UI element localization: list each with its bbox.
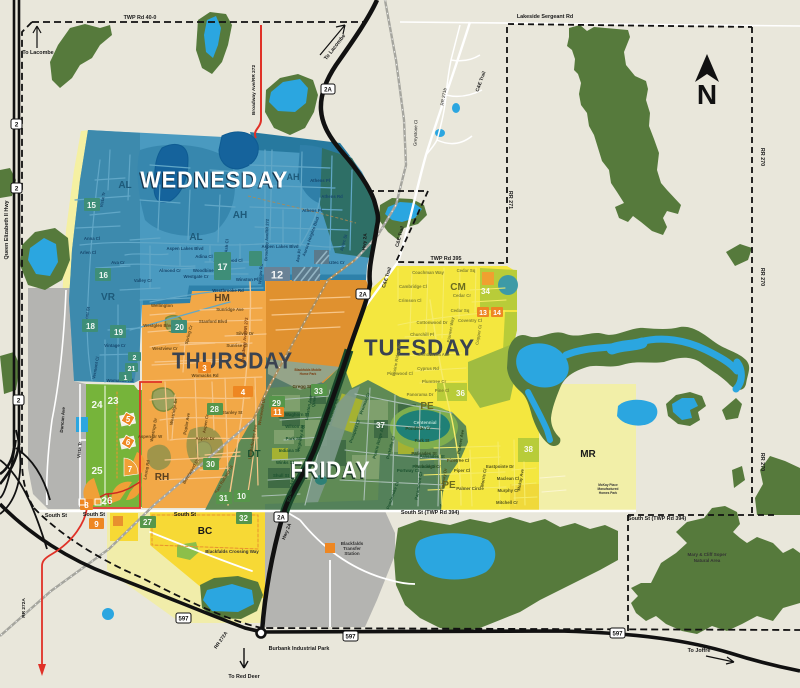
svg-text:Homes Park: Homes Park	[599, 491, 618, 495]
svg-text:BC: BC	[198, 526, 212, 537]
svg-text:RR 270: RR 270	[759, 268, 765, 286]
svg-text:Coachman Way: Coachman Way	[412, 270, 444, 275]
svg-text:597: 597	[345, 635, 356, 641]
svg-text:Vintage Cr: Vintage Cr	[104, 343, 126, 348]
svg-text:Mary & Cliff Soper: Mary & Cliff Soper	[687, 552, 726, 557]
svg-text:Adina Cl: Adina Cl	[195, 254, 212, 259]
svg-text:597: 597	[612, 632, 623, 638]
svg-text:Panorama Dr: Panorama Dr	[407, 392, 434, 397]
svg-text:29: 29	[272, 399, 281, 408]
svg-text:Broadway Ave/RR 272: Broadway Ave/RR 272	[251, 65, 257, 116]
svg-text:30: 30	[206, 460, 215, 469]
svg-text:HM: HM	[214, 293, 230, 304]
svg-text:Athens Rd: Athens Rd	[321, 194, 343, 199]
svg-text:6: 6	[126, 438, 131, 447]
svg-text:Aspen Dr: Aspen Dr	[195, 436, 214, 441]
svg-text:Westgate Cr: Westgate Cr	[184, 274, 209, 279]
svg-text:Aspen Lakes Blvd: Aspen Lakes Blvd	[166, 246, 203, 251]
svg-text:Anna Cl: Anna Cl	[84, 236, 100, 241]
svg-text:To Joffre: To Joffre	[688, 648, 711, 654]
svg-text:South St (TWP Rd 394): South St (TWP Rd 394)	[401, 510, 460, 516]
svg-text:Natural Area: Natural Area	[694, 558, 721, 563]
svg-text:Cedar Sq: Cedar Sq	[457, 268, 476, 273]
svg-text:RR 270: RR 270	[759, 453, 765, 471]
svg-text:TWP Rd 40-0: TWP Rd 40-0	[124, 15, 157, 21]
svg-text:1: 1	[124, 375, 128, 382]
svg-text:Lakeside Sergeant Rd: Lakeside Sergeant Rd	[517, 14, 573, 20]
svg-text:9: 9	[94, 520, 99, 529]
svg-text:Cedar Cr: Cedar Cr	[453, 293, 471, 298]
svg-text:Home Park: Home Park	[300, 372, 317, 376]
svg-text:MR: MR	[580, 449, 596, 460]
svg-text:Eastpointe Dr: Eastpointe Dr	[486, 464, 514, 469]
svg-text:Cambridge Cl: Cambridge Cl	[399, 284, 427, 289]
svg-text:5: 5	[126, 415, 131, 424]
svg-text:Womacks Rd: Womacks Rd	[192, 373, 219, 378]
svg-text:Pine Cl: Pine Cl	[435, 388, 450, 393]
svg-text:2: 2	[17, 398, 21, 405]
svg-text:To Red Deer: To Red Deer	[228, 674, 260, 680]
svg-text:Aztec Cr: Aztec Cr	[327, 260, 345, 265]
svg-text:Pinewood Cl: Pinewood Cl	[387, 371, 413, 376]
svg-text:25: 25	[91, 466, 103, 477]
svg-text:Pinetree Cl: Pinetree Cl	[447, 458, 469, 463]
svg-text:Palisades St: Palisades St	[419, 454, 445, 459]
svg-text:2A: 2A	[359, 293, 367, 299]
svg-text:24: 24	[91, 400, 103, 411]
svg-text:2A: 2A	[324, 88, 332, 94]
svg-text:19: 19	[114, 328, 123, 337]
svg-text:RR 271: RR 271	[507, 191, 513, 209]
svg-text:Cyprus Rd: Cyprus Rd	[417, 366, 439, 371]
svg-text:To Lacombe: To Lacombe	[22, 50, 53, 56]
svg-text:Crimson Cl: Crimson Cl	[399, 298, 422, 303]
svg-text:AH: AH	[233, 210, 247, 221]
svg-text:THURSDAY: THURSDAY	[172, 348, 293, 374]
svg-text:Winks St: Winks St	[276, 460, 295, 465]
svg-text:Athens Pl: Athens Pl	[310, 178, 330, 183]
svg-text:FRIDAY: FRIDAY	[291, 457, 371, 483]
svg-text:Mitchell Cr: Mitchell Cr	[496, 500, 518, 505]
svg-text:38: 38	[524, 445, 533, 454]
svg-text:Greystone Cl: Greystone Cl	[413, 120, 419, 146]
svg-text:31: 31	[219, 494, 228, 503]
svg-text:Sunridge Ave: Sunridge Ave	[216, 307, 244, 312]
svg-text:16: 16	[99, 271, 108, 280]
svg-text:South St (TWP Rd 394): South St (TWP Rd 394)	[628, 516, 687, 522]
svg-text:AL: AL	[189, 232, 202, 243]
svg-text:10: 10	[237, 492, 246, 501]
svg-text:Westview Cr: Westview Cr	[152, 346, 178, 351]
svg-text:Maclean Cl: Maclean Cl	[497, 476, 519, 481]
svg-text:AL: AL	[118, 180, 131, 191]
svg-text:4: 4	[241, 388, 246, 397]
svg-text:Shull St: Shull St	[273, 473, 290, 478]
svg-text:South St: South St	[45, 513, 67, 519]
svg-text:Burbank Industrial Park: Burbank Industrial Park	[269, 646, 330, 652]
svg-text:Pondside Cr: Pondside Cr	[405, 426, 431, 431]
svg-text:Winston Pl: Winston Pl	[236, 277, 258, 282]
svg-text:23: 23	[107, 396, 119, 407]
svg-text:12: 12	[271, 270, 283, 282]
svg-text:32: 32	[239, 514, 248, 523]
svg-text:Westbrooke Rd: Westbrooke Rd	[212, 288, 244, 293]
svg-text:37: 37	[376, 421, 385, 430]
svg-text:2: 2	[133, 355, 137, 362]
svg-text:2A: 2A	[277, 516, 285, 522]
svg-text:26: 26	[101, 496, 113, 507]
svg-text:Station: Station	[344, 551, 360, 556]
svg-text:14: 14	[493, 310, 501, 317]
svg-text:28: 28	[210, 405, 219, 414]
svg-text:Athens Pl: Athens Pl	[302, 208, 322, 213]
svg-text:AH: AH	[287, 172, 300, 182]
svg-text:Park St: Park St	[415, 438, 430, 443]
svg-text:7: 7	[128, 465, 133, 474]
svg-text:RH: RH	[155, 472, 169, 483]
svg-text:Valley Cr: Valley Cr	[134, 278, 152, 283]
svg-text:Stanley St: Stanley St	[222, 410, 243, 415]
svg-text:15: 15	[87, 201, 96, 210]
svg-text:Queen Elizabeth II Hwy: Queen Elizabeth II Hwy	[4, 200, 10, 259]
svg-text:Cottonwood Dr: Cottonwood Dr	[416, 320, 447, 325]
svg-text:South St: South St	[83, 512, 105, 518]
svg-text:CM: CM	[450, 282, 466, 293]
svg-text:Wellington: Wellington	[151, 303, 173, 308]
svg-text:Coventry Cl: Coventry Cl	[458, 318, 482, 323]
svg-text:PE: PE	[420, 401, 434, 412]
svg-text:2: 2	[15, 186, 19, 193]
svg-text:Blackfalds Crossing Way: Blackfalds Crossing Way	[205, 549, 259, 554]
svg-text:34: 34	[481, 287, 490, 296]
svg-text:3: 3	[202, 364, 207, 373]
svg-text:Stanford Blvd: Stanford Blvd	[199, 319, 228, 324]
svg-text:N: N	[697, 79, 717, 110]
svg-text:36: 36	[456, 389, 465, 398]
svg-text:20: 20	[175, 323, 184, 332]
svg-text:33: 33	[314, 387, 323, 396]
svg-text:Portway Cl: Portway Cl	[397, 468, 419, 473]
svg-text:WEDNESDAY: WEDNESDAY	[140, 166, 288, 192]
svg-text:Gregg St: Gregg St	[292, 384, 312, 389]
svg-text:27: 27	[143, 518, 152, 527]
svg-text:597: 597	[178, 617, 189, 623]
svg-text:13: 13	[479, 310, 487, 317]
svg-text:21: 21	[128, 366, 136, 373]
svg-text:17: 17	[217, 262, 227, 272]
svg-text:Arlen Cl: Arlen Cl	[80, 250, 96, 255]
svg-text:Piper Cl: Piper Cl	[454, 468, 470, 473]
svg-text:VR: VR	[101, 292, 116, 303]
svg-text:South St: South St	[174, 512, 196, 518]
svg-text:2: 2	[15, 122, 19, 129]
svg-text:18: 18	[86, 322, 95, 331]
svg-text:Westglen Blvd: Westglen Blvd	[143, 323, 173, 328]
svg-text:Plumtree Cr: Plumtree Cr	[422, 379, 447, 384]
svg-text:TWP Rd 395: TWP Rd 395	[430, 256, 461, 262]
svg-text:RR 272A: RR 272A	[21, 598, 27, 618]
svg-text:Ava Cr: Ava Cr	[111, 260, 125, 265]
svg-text:11: 11	[273, 408, 282, 417]
svg-text:Churchill Pl: Churchill Pl	[410, 332, 434, 337]
svg-text:RR 270: RR 270	[759, 148, 765, 166]
svg-text:Cedar Sq: Cedar Sq	[451, 308, 470, 313]
svg-text:Ponderosa Ave: Ponderosa Ave	[419, 352, 451, 357]
svg-text:Almond Cr: Almond Cr	[159, 268, 181, 273]
